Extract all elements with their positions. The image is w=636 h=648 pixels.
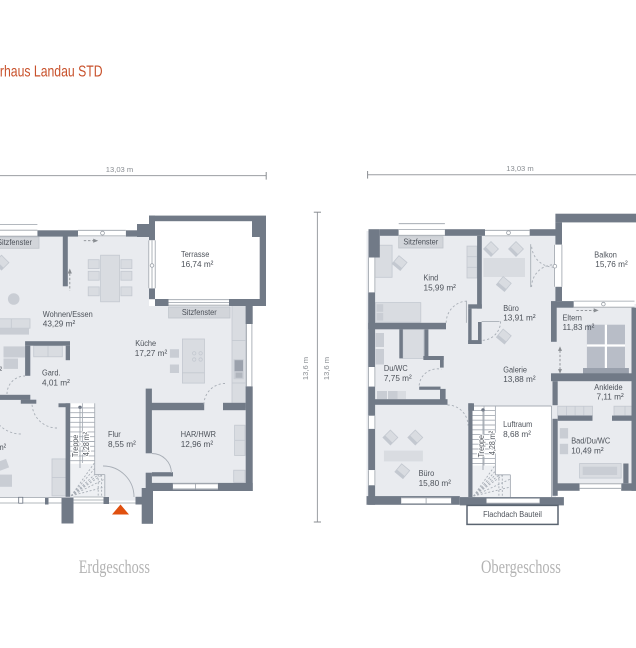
svg-text:11,83 m²: 11,83 m² [563,322,595,332]
svg-text:Bad/Du/WC: Bad/Du/WC [571,436,610,446]
svg-text:10,49 m²: 10,49 m² [571,445,604,455]
svg-text:Luftraum: Luftraum [503,420,533,430]
svg-text:Musterhaus Landau STD: Musterhaus Landau STD [0,63,103,81]
svg-text:12,96 m²: 12,96 m² [181,439,214,449]
svg-text:Eltern: Eltern [563,313,582,323]
svg-text:16,74 m²: 16,74 m² [181,259,214,269]
svg-text:Flur: Flur [108,430,121,440]
svg-text:8,55 m²: 8,55 m² [108,439,136,449]
svg-text:Wohnen/Essen: Wohnen/Essen [43,309,93,319]
svg-text:Kind: Kind [424,273,439,283]
svg-text:Ankleide: Ankleide [594,382,623,392]
svg-text:Gard.: Gard. [42,368,60,378]
svg-text:m²: m² [0,366,2,376]
svg-text:Flachdach Bauteil: Flachdach Bauteil [483,509,542,519]
svg-text:Sitzfenster: Sitzfenster [182,307,217,317]
svg-text:13,91 m²: 13,91 m² [503,313,536,323]
svg-text:Treppe: Treppe [70,435,80,457]
svg-text:m²: m² [0,442,6,452]
svg-text:Küche: Küche [135,339,157,349]
svg-text:Treppe: Treppe [477,435,487,457]
svg-text:Büro: Büro [503,303,519,313]
svg-text:17,27 m²: 17,27 m² [135,348,168,358]
svg-text:Obergeschoss: Obergeschoss [481,556,561,577]
svg-text:15,80 m²: 15,80 m² [419,478,452,488]
svg-text:Terrasse: Terrasse [181,250,210,260]
svg-text:13,03 m: 13,03 m [106,165,133,174]
svg-text:8,68 m²: 8,68 m² [503,429,531,439]
svg-text:13,88 m²: 13,88 m² [503,374,536,384]
svg-text:4,28 m²: 4,28 m² [487,431,497,456]
svg-text:HAR/HWR: HAR/HWR [181,430,217,440]
svg-text:Sitzfenster: Sitzfenster [403,237,438,247]
svg-text:Galerie: Galerie [503,365,527,375]
svg-text:13,6 m: 13,6 m [322,357,331,380]
svg-text:43,29 m²: 43,29 m² [43,319,76,329]
svg-text:13,03 m: 13,03 m [506,164,533,173]
svg-text:7,11 m²: 7,11 m² [597,392,624,402]
svg-text:Büro: Büro [419,469,435,479]
svg-text:4,01 m²: 4,01 m² [42,377,70,387]
svg-text:Du/WC: Du/WC [384,364,408,374]
svg-text:Erdgeschoss: Erdgeschoss [79,556,150,577]
svg-text:Balkon: Balkon [594,250,617,260]
svg-text:7,75 m²: 7,75 m² [384,373,412,383]
svg-text:Sitzfenster: Sitzfenster [0,238,32,248]
svg-text:15,99 m²: 15,99 m² [424,282,457,292]
svg-text:4,28 m²: 4,28 m² [82,432,92,457]
svg-text:13,6 m: 13,6 m [301,357,310,380]
svg-text:15,76 m²: 15,76 m² [595,259,628,269]
